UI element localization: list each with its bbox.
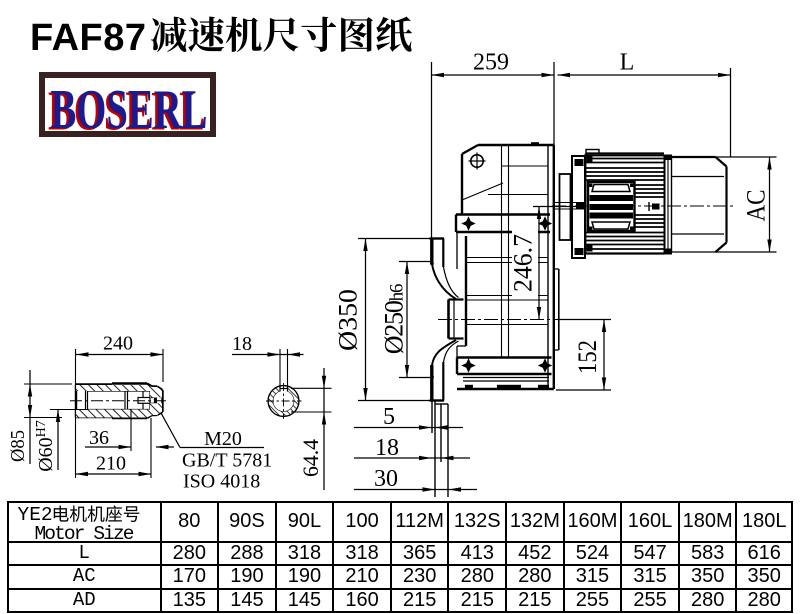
svg-text:5: 5 xyxy=(383,404,395,430)
svg-text:30: 30 xyxy=(374,466,398,492)
svg-text:Ø60H7: Ø60H7 xyxy=(34,420,57,472)
svg-text:152: 152 xyxy=(573,340,602,374)
svg-text:246.7: 246.7 xyxy=(509,234,538,292)
svg-text:BOSERL: BOSERL xyxy=(51,79,208,131)
svg-text:240: 240 xyxy=(103,333,133,355)
svg-text:Ø350: Ø350 xyxy=(334,289,363,351)
svg-text:259: 259 xyxy=(473,50,509,76)
svg-text:GB/T 5781: GB/T 5781 xyxy=(182,450,272,472)
svg-text:210: 210 xyxy=(96,453,126,475)
svg-text:18: 18 xyxy=(232,333,252,355)
svg-text:36: 36 xyxy=(89,427,109,449)
svg-text:64.4: 64.4 xyxy=(298,439,323,477)
svg-text:Ø85: Ø85 xyxy=(7,430,29,462)
svg-text:Motor Size: Motor Size xyxy=(35,523,135,541)
svg-text:AC: AC xyxy=(742,190,771,222)
svg-text:18: 18 xyxy=(375,435,399,461)
svg-text:ISO 4018: ISO 4018 xyxy=(183,471,260,493)
svg-text:Ø250h6: Ø250h6 xyxy=(380,284,409,354)
svg-text:L: L xyxy=(620,50,635,76)
svg-text:M20: M20 xyxy=(204,428,242,450)
